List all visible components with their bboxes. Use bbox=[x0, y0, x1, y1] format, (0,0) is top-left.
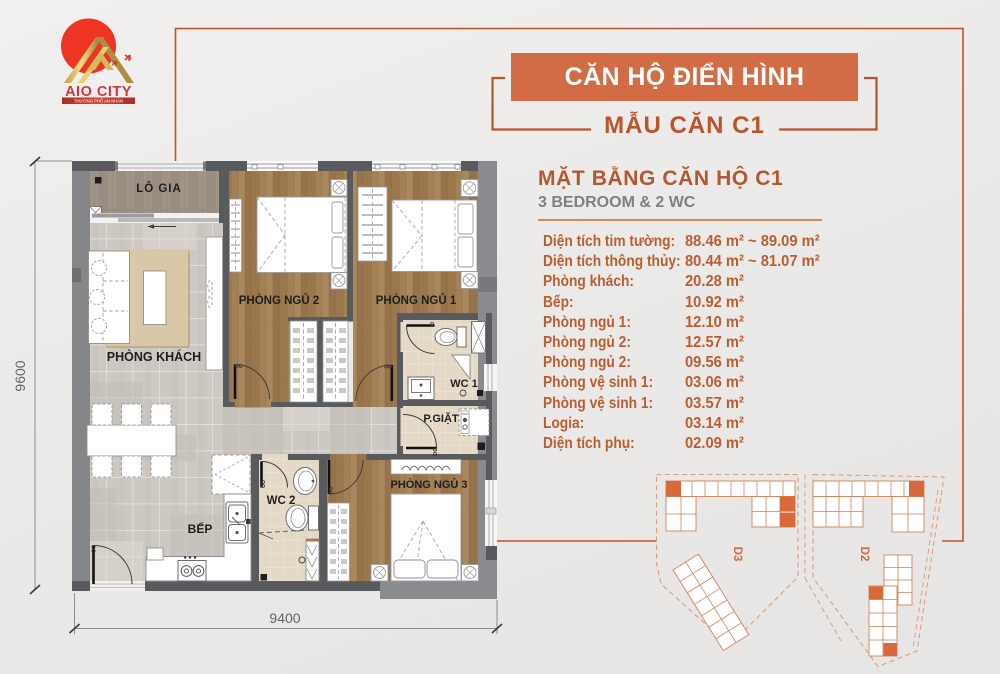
svg-text:WC 2: WC 2 bbox=[267, 495, 296, 507]
svg-text:D2: D2 bbox=[858, 547, 870, 562]
svg-text:9600: 9600 bbox=[12, 360, 28, 391]
svg-text:PHÒNG NGỦ 2: PHÒNG NGỦ 2 bbox=[239, 294, 320, 307]
svg-text:PHÒNG NGỦ 1: PHÒNG NGỦ 1 bbox=[376, 294, 457, 307]
svg-text:THƯƠNG PHỐ AN NHÂN: THƯƠNG PHỐ AN NHÂN bbox=[74, 99, 123, 104]
svg-text:PHÒNG NGỦ 3: PHÒNG NGỦ 3 bbox=[390, 478, 467, 491]
svg-text:9400: 9400 bbox=[269, 610, 300, 626]
svg-text:WC 1: WC 1 bbox=[450, 378, 478, 390]
svg-text:PHÒNG KHÁCH: PHÒNG KHÁCH bbox=[107, 349, 201, 364]
svg-text:D3: D3 bbox=[731, 547, 743, 562]
svg-text:P.GIẶT: P.GIẶT bbox=[423, 412, 459, 425]
svg-text:LÔ GIA: LÔ GIA bbox=[136, 182, 182, 195]
svg-text:BẾP: BẾP bbox=[188, 521, 213, 536]
